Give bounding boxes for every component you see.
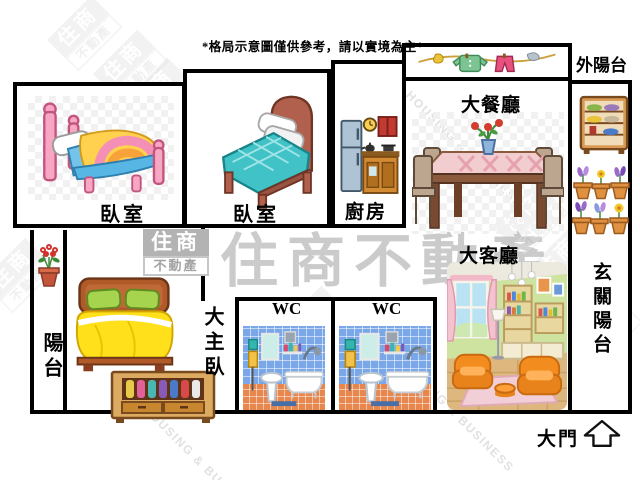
balcony-flower-icon: [36, 243, 62, 287]
label-balcony: 陽台: [37, 332, 66, 382]
label-master: 大主臥: [198, 306, 227, 381]
bathroom-icon: [339, 326, 431, 410]
clothesline-icon: [412, 47, 562, 77]
shoe-cabinet-icon: [577, 94, 631, 158]
label-bedroom2: 臥室: [233, 198, 279, 227]
flower-pots-icon: [572, 166, 630, 238]
label-door: 大門: [537, 424, 579, 451]
wall-balcony-left: [30, 230, 34, 414]
label-wc2: WC: [372, 299, 401, 319]
disclaimer-text: *格局示意圖僅供參考，請以實境為主*: [202, 36, 424, 55]
label-wc1: WC: [272, 299, 301, 319]
floor-plan: 住商不動產 HOUSING & BUSINESS HOUSING & BUSIN…: [0, 0, 640, 480]
label-entry-balcony: 玄關陽台: [587, 262, 614, 358]
label-outer-balcony: 外陽台: [576, 51, 627, 76]
living-room-icon: [447, 262, 567, 410]
label-dining: 大餐廳: [461, 90, 521, 117]
brand-logo-top: 住商: [143, 229, 209, 256]
dining-table-icon: [412, 112, 564, 234]
label-bedroom1: 臥室: [100, 198, 146, 227]
bedroom1-bed-icon: [28, 96, 174, 200]
bathroom-icon: [243, 326, 325, 410]
brand-logo-badge: 住商 不動產: [143, 229, 209, 276]
kitchen-icon: [338, 98, 400, 212]
door-arrow-icon: [583, 419, 621, 448]
label-kitchen: 廚房: [345, 197, 387, 224]
bedroom2-bed-icon: [212, 86, 324, 212]
master-bed-icon: [66, 272, 180, 372]
label-living: 大客廳: [459, 241, 519, 268]
